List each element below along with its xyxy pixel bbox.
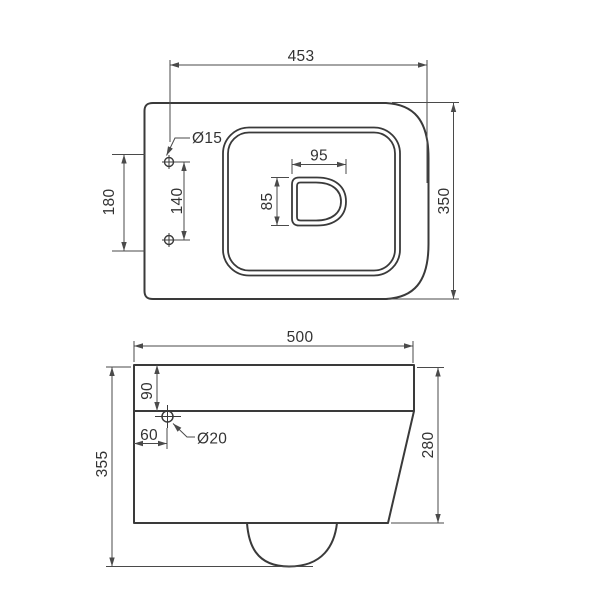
side-view: 500 355 90 60 Ø20 280 [94,329,444,567]
side-view-dimension-labels: 500 355 90 60 Ø20 280 [94,329,437,477]
top-view-dimension-lines [112,60,459,299]
top-view-outlines [145,103,429,299]
dim-label-front-height: 280 [420,432,437,459]
dim-label-hole-diameter-side: Ø20 [197,431,227,448]
outlet-inner [297,183,341,221]
dim-label-hole-span-outer: 180 [101,189,118,216]
dim-label-outlet-height: 85 [259,193,276,211]
dim-label-top-depth: 350 [436,188,453,215]
top-view: 453 350 Ø15 180 140 95 85 [101,48,459,299]
side-view-dimension-lines [106,341,444,567]
fixing-hole-bottom [162,233,176,247]
dim-label-side-width: 500 [287,329,314,346]
side-fixing-hole [155,405,181,428]
leader-hole-diameter-side [173,424,195,438]
fixing-hole-top [162,155,176,169]
trap-outline [247,523,337,567]
dim-label-top-width: 453 [288,48,315,65]
outlet-outer [292,178,346,226]
drawing-canvas: 453 350 Ø15 180 140 95 85 [0,0,600,600]
body-outline [134,365,414,523]
technical-drawing: 453 350 Ø15 180 140 95 85 [0,0,600,600]
side-view-outlines [134,365,414,567]
dim-label-side-height: 355 [94,451,111,478]
dim-label-rim-height: 90 [139,382,156,400]
dim-label-hole-inset: 60 [140,427,158,444]
dim-label-hole-span: 140 [169,188,186,215]
dim-label-outlet-width: 95 [310,148,328,165]
dim-label-hole-diameter-top: Ø15 [192,130,222,147]
